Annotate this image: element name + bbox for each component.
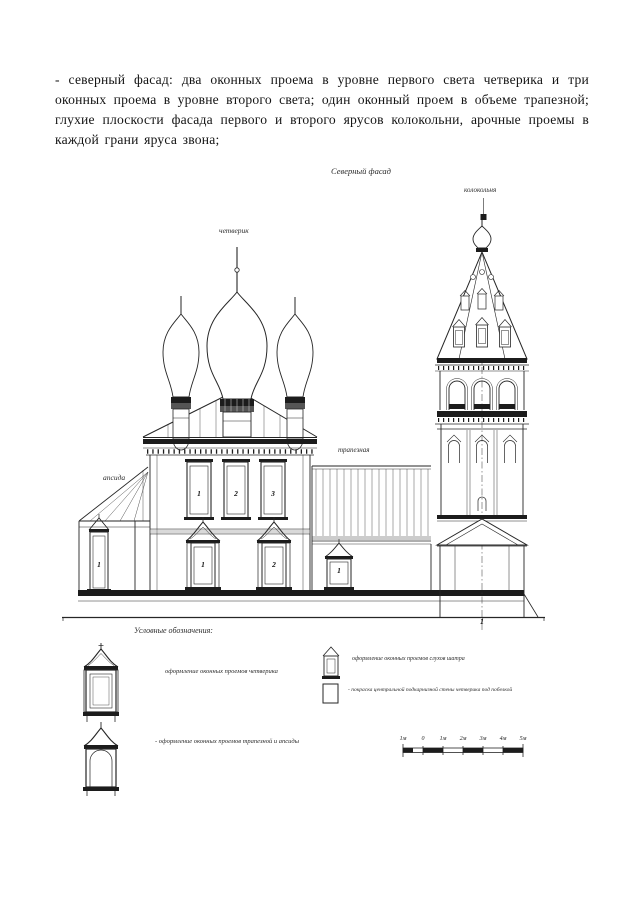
onion-domes — [163, 247, 313, 450]
lower-window-2 — [256, 517, 292, 590]
refectory-apse-window-icon — [83, 722, 119, 796]
dormer-window-icon — [322, 647, 340, 679]
scale-bar — [403, 744, 523, 757]
refectory-window — [324, 539, 354, 590]
facade-drawing — [0, 0, 640, 905]
window-number-lower-1: 1 — [198, 560, 208, 569]
apse-drawing — [79, 467, 150, 592]
bell-tower-drawing — [435, 198, 538, 630]
apse-window — [87, 514, 111, 592]
bell-tower-base-number: 1 — [477, 617, 487, 626]
window-number-refectory: 1 — [334, 566, 344, 575]
lower-window-1 — [185, 517, 221, 590]
legend-item-1-label: оформление оконных проемов четверика — [165, 668, 278, 675]
scale-label-1: 0 — [416, 736, 430, 742]
legend-heading: Условные обозначения: — [134, 626, 213, 635]
window-number-lower-2: 2 — [269, 560, 279, 569]
tier-niche-3 — [503, 435, 517, 463]
window-number-upper-2: 2 — [231, 489, 241, 498]
refectory-drawing — [312, 466, 431, 590]
ground-line — [62, 590, 545, 621]
window-number-upper-3: 3 — [268, 489, 278, 498]
bell-arch-3 — [497, 379, 518, 411]
legend-item-4-label: - покраска центральной подкарнизной стен… — [348, 687, 512, 693]
bell-arch-1 — [447, 379, 468, 411]
window-number-upper-1: 1 — [194, 489, 204, 498]
scale-label-5: 4м — [496, 736, 510, 742]
plain-square-icon — [323, 684, 338, 703]
legend-item-2-label: - оформление оконных проемов трапезной и… — [155, 738, 299, 745]
document-page: - северный фасад: два оконных проема в у… — [0, 0, 640, 905]
chetverik-window-icon — [83, 643, 119, 722]
scale-label-3: 2м — [456, 736, 470, 742]
refectory-label: трапезная — [338, 446, 370, 454]
chetverik-drawing — [143, 438, 317, 591]
scale-label-6: 5м — [516, 736, 530, 742]
bell-tower-label: колокольня — [464, 186, 496, 194]
tier-niche-1 — [447, 435, 461, 463]
window-number-apse: 1 — [94, 560, 104, 569]
scale-label-2: 1м — [436, 736, 450, 742]
drawing-title: Северный фасад — [331, 166, 391, 176]
chetverik-label: четверик — [219, 226, 249, 235]
apse-label: апсида — [103, 473, 125, 482]
legend-item-3-label: оформление оконных проемов слухов шатра — [352, 656, 465, 662]
scale-label-0: 1м — [396, 736, 410, 742]
scale-label-4: 3м — [476, 736, 490, 742]
